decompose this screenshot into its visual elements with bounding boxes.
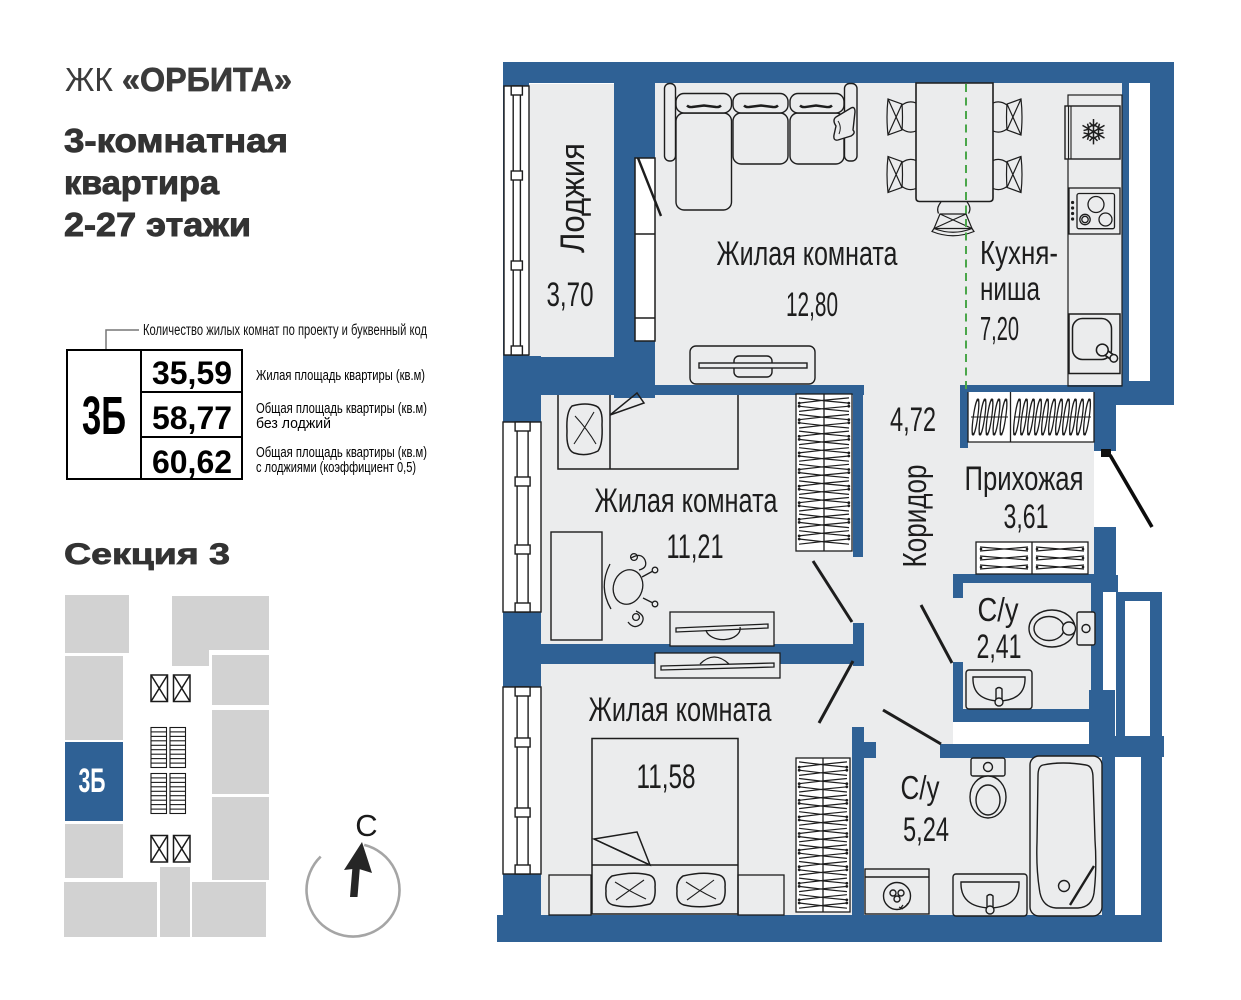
svg-text:ниша: ниша [980, 270, 1040, 307]
svg-text:Кухня-: Кухня- [980, 234, 1058, 271]
svg-text:Жилая комната: Жилая комната [589, 691, 772, 729]
svg-text:Жилая комната: Жилая комната [595, 482, 778, 520]
svg-text:Коридор: Коридор [896, 465, 933, 568]
svg-text:Секция 3: Секция 3 [64, 538, 230, 571]
svg-text:3Б: 3Б [82, 386, 126, 446]
svg-text:11,21: 11,21 [667, 528, 724, 566]
svg-text:3,61: 3,61 [1004, 498, 1049, 536]
svg-text:Жилая площадь квартиры (кв.м): Жилая площадь квартиры (кв.м) [256, 367, 425, 384]
svg-text:Жилая комната: Жилая комната [717, 235, 898, 273]
svg-text:Прихожая: Прихожая [965, 460, 1084, 498]
svg-text:без лоджий: без лоджий [256, 415, 331, 432]
svg-text:Лоджия: Лоджия [554, 143, 592, 253]
svg-text:60,62: 60,62 [152, 444, 232, 480]
svg-text:ЖК: ЖК [65, 61, 114, 98]
svg-text:С/у: С/у [978, 591, 1019, 628]
svg-text:с лоджиями (коэффициент 0,5): с лоджиями (коэффициент 0,5) [256, 459, 416, 476]
svg-text:3Б: 3Б [79, 762, 106, 800]
svg-text:11,58: 11,58 [637, 758, 696, 796]
svg-text:квартира: квартира [64, 164, 220, 201]
svg-text:35,59: 35,59 [152, 355, 232, 391]
svg-text:7,20: 7,20 [980, 310, 1019, 347]
svg-text:С: С [355, 808, 377, 843]
svg-text:4,72: 4,72 [890, 401, 936, 439]
svg-text:3,70: 3,70 [547, 276, 594, 314]
svg-text:«ОРБИТА»: «ОРБИТА» [122, 61, 292, 98]
svg-text:3-комнатная: 3-комнатная [64, 122, 288, 159]
svg-text:12,80: 12,80 [786, 286, 838, 324]
svg-text:2,41: 2,41 [977, 628, 1022, 666]
svg-text:58,77: 58,77 [152, 400, 232, 436]
svg-text:Количество жилых комнат по про: Количество жилых комнат по проекту и бук… [143, 322, 427, 339]
svg-text:С/у: С/у [901, 769, 940, 806]
svg-text:5,24: 5,24 [903, 811, 949, 849]
svg-text:2-27 этажи: 2-27 этажи [64, 206, 251, 243]
